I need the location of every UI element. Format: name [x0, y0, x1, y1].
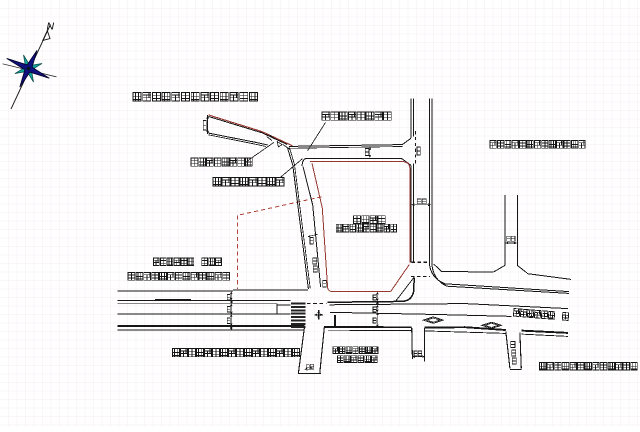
svg-text:N: N [47, 21, 55, 33]
